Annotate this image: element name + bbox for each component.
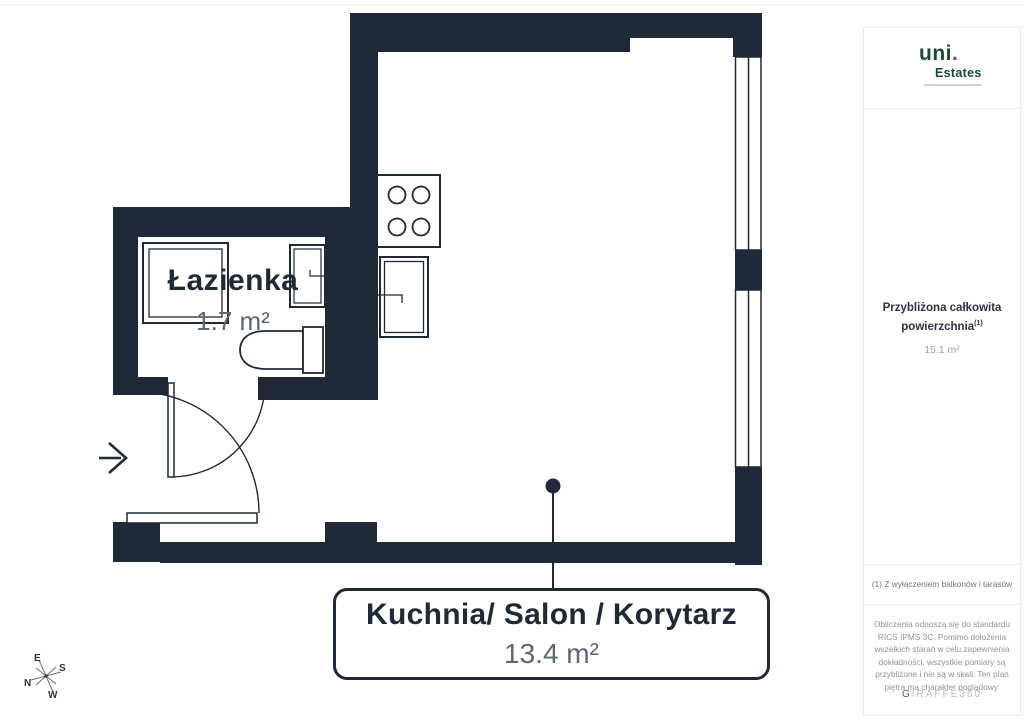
disclaimer-line: RICS IPMS 3C. Pomimo dołożenia (864, 631, 1020, 644)
footnote-text: (1) Z wyłączeniem balkonów i tarasów (872, 579, 1012, 589)
brand-dot: . (952, 42, 958, 65)
wall-window-pillar (735, 250, 762, 290)
brand-name: uni (919, 42, 952, 65)
wall-bath-right (325, 237, 352, 377)
compass-e: E (34, 653, 41, 664)
total-area-value: 15.1 m² (864, 344, 1020, 356)
toilet-tank (303, 327, 323, 373)
brand-tagline-microtext (924, 84, 982, 86)
room-area: 13.4 m² (504, 638, 599, 670)
total-area-block: Przybliżona całkowita powierzchnia(1) 15… (864, 301, 1020, 356)
footnote-section: (1) Z wyłączeniem balkonów i tarasów (864, 564, 1020, 604)
wall-bath-left (113, 207, 138, 392)
leader-dot (546, 479, 561, 494)
compass-s: S (59, 663, 66, 674)
stove-burner (413, 187, 430, 204)
wall-top-right (630, 13, 733, 38)
shower-inner (149, 249, 222, 317)
label-leader (546, 479, 561, 589)
disclaimer-paragraph: Obliczenia odnoszą się do standardu RICS… (864, 618, 1020, 694)
compass-rose: E S N W (10, 644, 85, 714)
brand-logo: uni. Estates (864, 28, 1020, 108)
entrance-arrow-icon (99, 443, 126, 473)
footnote-marker: (1) (974, 320, 983, 327)
brand-logo-text: uni. (919, 42, 958, 66)
total-area-label-line1: Przybliżona całkowita (864, 301, 1020, 316)
room-label-main: Kuchnia/ Salon / Korytarz 13.4 m² (333, 588, 770, 680)
wall-kitchen-left (350, 13, 378, 400)
giraffe360-watermark: GIRAFFE360 (864, 689, 1020, 700)
wall-top-left (350, 13, 630, 52)
doors (127, 383, 265, 523)
wall-corner-bottomleft (113, 522, 160, 562)
entry-door-leaf (127, 513, 257, 523)
toilet-bowl (240, 331, 303, 369)
wall-bottom-stub (325, 522, 377, 542)
kitchen-fixtures (376, 175, 440, 337)
stove-burner (389, 219, 406, 236)
room-name: Kuchnia/ Salon / Korytarz (366, 598, 737, 632)
wall-bath-bottom-right (258, 377, 378, 400)
compass-w: W (48, 690, 58, 701)
total-area-label: Przybliżona całkowita powierzchnia(1) (864, 301, 1020, 335)
disclaimer-line: wszelkich starań w celu zapewnienia (864, 643, 1020, 656)
bathroom-fixtures (143, 243, 325, 373)
wall-bottom-main (327, 542, 762, 563)
brand-sub: Estates (935, 66, 982, 80)
entry-door-swing (138, 392, 259, 513)
sidebar: uni. Estates Przybliżona całkowita powie… (863, 27, 1021, 716)
floorplan-page: Łazienka 1.7 m² Kuchnia/ Salon / Korytar… (0, 0, 1024, 724)
disclaimer-line: Obliczenia odnoszą się do standardu (864, 618, 1020, 631)
disclaimer-line: dokładności, wszystkie pomiary są (864, 656, 1020, 669)
stove-burner (389, 187, 406, 204)
stove-burner (413, 219, 430, 236)
compass-n: N (24, 678, 31, 689)
disclaimer-line: przybliżone i nie są w skali. Ten plan (864, 668, 1020, 681)
bathroom-door-swing (171, 383, 265, 477)
wall-corner-topright (733, 13, 762, 57)
wall-bottom-corridor (160, 542, 327, 563)
wall-bath-top (113, 207, 352, 237)
compass-star (31, 660, 61, 692)
kitchen-sink-basin (385, 262, 424, 333)
total-area-label-line2: powierzchnia(1) (864, 316, 1020, 335)
sidebar-divider (864, 604, 1020, 605)
stove (377, 175, 440, 247)
sidebar-divider (864, 108, 1020, 109)
